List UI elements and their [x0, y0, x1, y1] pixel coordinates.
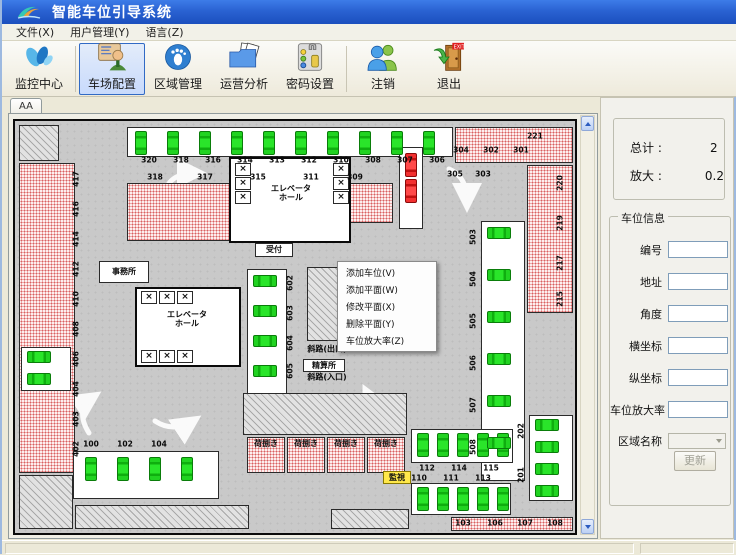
spot-number-label: 313: [269, 157, 285, 166]
spot-number-label: 317: [197, 174, 213, 183]
monitor-tag: 監視: [383, 471, 411, 484]
spot-number-label: 604: [287, 335, 296, 351]
elevator-shaft: ×: [141, 291, 157, 304]
free-car-spot-indicator[interactable]: [487, 353, 511, 365]
spot-number-label: 113: [475, 475, 491, 484]
occupied-stall-area[interactable]: [19, 163, 75, 473]
spot-zoom-field[interactable]: [668, 401, 728, 418]
logout-button[interactable]: 注销: [350, 43, 416, 95]
spot-number-label: 602: [287, 275, 296, 291]
app-window: { "window": { "title": "智能车位引导系统" }, "co…: [0, 0, 736, 554]
field-label-spot-zoom: 车位放大率: [610, 402, 668, 418]
free-car-spot-indicator[interactable]: [253, 335, 277, 347]
free-car-spot-indicator[interactable]: [199, 131, 211, 155]
spot-number-label: 112: [419, 465, 435, 474]
spot-number-label: 220: [557, 175, 566, 191]
context-menu-add-plane[interactable]: 添加平面(W): [338, 281, 436, 298]
floor-map[interactable]: 添加车位(V) 添加平面(W) 修改平面(X) 删除平面(Y) 车位放大率(Z)…: [13, 119, 577, 535]
spot-number-label: 505: [470, 313, 479, 329]
spot-number-label: 305: [447, 171, 463, 180]
spot-number-label: 115: [483, 465, 499, 474]
zoom-value: 0.2: [677, 169, 724, 183]
spot-number-label: 504: [470, 271, 479, 287]
elevator-shaft: ×: [159, 350, 175, 363]
free-car-spot-indicator[interactable]: [327, 131, 339, 155]
elevator-shaft: ×: [159, 291, 175, 304]
chevron-down-icon: [716, 439, 722, 443]
spot-number-label: 410: [73, 291, 82, 307]
spot-number-label: 508: [470, 439, 479, 455]
toolbar-button-label: 运营分析: [220, 75, 268, 92]
free-car-spot-indicator[interactable]: [417, 487, 429, 511]
toolbar-button-label: 区域管理: [154, 75, 202, 92]
area-name-dropdown[interactable]: [668, 433, 726, 449]
main-toolbar: 监控中心 车场配置 区域管理: [2, 41, 736, 97]
spot-number-label: 107: [517, 520, 533, 529]
spot-number-label: 303: [475, 171, 491, 180]
spot-number-label: 304: [453, 147, 469, 156]
parking-stall-area[interactable]: [247, 269, 287, 397]
spot-number-label: 308: [365, 157, 381, 166]
window-title: 智能车位引导系统: [52, 2, 172, 22]
toolbar-button-label: 密码设置: [286, 75, 334, 92]
exit-button[interactable]: EXIT 退出: [416, 43, 482, 95]
occupied-stall-area[interactable]: [527, 165, 573, 313]
elevator-shaft: ×: [177, 350, 193, 363]
spot-number-label: 217: [557, 255, 566, 271]
spot-number-label: 219: [557, 215, 566, 231]
elevator-shaft: ×: [141, 350, 157, 363]
number-field[interactable]: [668, 241, 728, 258]
spot-number-label: 201: [518, 467, 527, 483]
elevator-shaft: ×: [177, 291, 193, 304]
spot-number-label: 106: [487, 520, 503, 529]
free-car-spot-indicator[interactable]: [27, 351, 51, 363]
elevator-shaft: ×: [235, 177, 251, 190]
area-label: 斜路(入口): [307, 372, 346, 381]
spot-number-label: 103: [455, 520, 471, 529]
field-label-address: 地址: [610, 274, 668, 290]
scroll-down-arrow-icon[interactable]: [581, 519, 594, 534]
spot-number-label: 320: [141, 157, 157, 166]
spot-number-label: 309: [347, 174, 363, 183]
parking-stall-area[interactable]: 精算所: [303, 359, 345, 372]
loading-bay: 荷捌き: [367, 437, 405, 473]
spot-number-label: 318: [173, 157, 189, 166]
structure-hatch-area: [75, 505, 249, 529]
toolbar-separator: [75, 46, 76, 92]
y-coordinate-field[interactable]: [668, 369, 728, 386]
free-car-spot-indicator[interactable]: [85, 457, 97, 481]
exit-icon: EXIT: [432, 42, 466, 75]
spot-number-label: 417: [73, 171, 82, 187]
structure-hatch-area: [19, 125, 59, 161]
password-settings-icon: [293, 42, 327, 75]
free-car-spot-indicator[interactable]: [487, 395, 511, 407]
free-car-spot-indicator[interactable]: [535, 485, 559, 497]
spot-number-label: 104: [151, 441, 167, 450]
spot-number-label: 402: [73, 441, 82, 457]
field-label-area-name: 区域名称: [610, 433, 668, 449]
total-label: 总计 :: [614, 139, 682, 156]
loading-bay: 荷捌き: [247, 437, 285, 473]
spot-number-label: 406: [73, 351, 82, 367]
free-car-spot-indicator[interactable]: [117, 457, 129, 481]
free-car-spot-indicator[interactable]: [535, 441, 559, 453]
area-manage-icon: [161, 42, 195, 75]
app-logo-icon: [16, 4, 42, 20]
spot-number-label: 416: [73, 201, 82, 217]
parking-stall-area[interactable]: 受付: [255, 243, 293, 257]
spot-number-label: 110: [411, 475, 427, 484]
spot-number-label: 102: [117, 441, 133, 450]
spot-number-label: 412: [73, 261, 82, 277]
free-car-spot-indicator[interactable]: [253, 305, 277, 317]
elevator-shaft: ×: [235, 191, 251, 204]
x-coordinate-field[interactable]: [668, 337, 728, 354]
toolbar-button-label: 车场配置: [88, 75, 136, 92]
free-car-spot-indicator[interactable]: [487, 227, 511, 239]
loading-bay: 荷捌き: [287, 437, 325, 473]
side-panel: 总计 : 2 放大 : 0.2 车位信息 编号 地址 角度 横坐标 纵坐标: [600, 97, 734, 539]
field-label-number: 编号: [610, 242, 668, 258]
angle-field[interactable]: [668, 305, 728, 322]
spot-number-label: 301: [513, 147, 529, 156]
context-menu-add-spot[interactable]: 添加车位(V): [338, 264, 436, 281]
free-car-spot-indicator[interactable]: [535, 463, 559, 475]
svg-text:EXIT: EXIT: [454, 44, 466, 50]
free-car-spot-indicator[interactable]: [417, 433, 429, 457]
area-label: エレベータ ホール: [271, 184, 311, 202]
free-car-spot-indicator[interactable]: [181, 457, 193, 481]
operation-analysis-button[interactable]: 运营分析: [211, 43, 277, 95]
free-car-spot-indicator[interactable]: [27, 373, 51, 385]
address-field[interactable]: [668, 273, 728, 290]
zoom-label: 放大 :: [614, 167, 677, 184]
free-car-spot-indicator[interactable]: [487, 437, 511, 449]
spot-number-label: 221: [527, 133, 543, 142]
lot-config-button[interactable]: 车场配置: [79, 43, 145, 95]
title-bar: 智能车位引导系统: [2, 0, 736, 24]
area-label: エレベータ ホール: [167, 310, 207, 328]
toolbar-button-label: 退出: [437, 75, 461, 92]
toolbar-button-label: 注销: [371, 75, 395, 92]
free-car-spot-indicator[interactable]: [437, 433, 449, 457]
operation-analysis-icon: [227, 42, 261, 75]
spot-number-label: 315: [250, 174, 266, 183]
spot-number-label: 202: [518, 423, 527, 439]
context-menu: 添加车位(V) 添加平面(W) 修改平面(X) 删除平面(Y) 车位放大率(Z): [337, 261, 437, 352]
spot-number-label: 215: [557, 291, 566, 307]
free-car-spot-indicator[interactable]: [487, 269, 511, 281]
status-bar: [2, 540, 736, 555]
spot-number-label: 506: [470, 355, 479, 371]
map-vertical-scrollbar[interactable]: [580, 115, 595, 535]
spot-number-label: 403: [73, 411, 82, 427]
spot-number-label: 302: [483, 147, 499, 156]
spot-number-label: 316: [205, 157, 221, 166]
area-manage-button[interactable]: 区域管理: [145, 43, 211, 95]
free-car-spot-indicator[interactable]: [487, 311, 511, 323]
field-label-y-coordinate: 纵坐标: [610, 370, 668, 386]
toolbar-separator: [346, 46, 347, 92]
spot-number-label: 311: [303, 174, 319, 183]
field-label-x-coordinate: 横坐标: [610, 338, 668, 354]
spot-number-label: 414: [73, 231, 82, 247]
update-button[interactable]: 更新: [674, 451, 716, 471]
spot-number-label: 507: [470, 397, 479, 413]
free-car-spot-indicator[interactable]: [295, 131, 307, 155]
spot-number-label: 312: [301, 157, 317, 166]
total-value: 2: [682, 141, 718, 155]
spot-number-label: 307: [397, 157, 413, 166]
context-menu-edit-plane[interactable]: 修改平面(X): [338, 298, 436, 315]
status-panel-right: [640, 543, 734, 554]
free-car-spot-indicator[interactable]: [263, 131, 275, 155]
toolbar-button-label: 监控中心: [15, 75, 63, 92]
menu-user-management[interactable]: 用户管理(Y): [62, 23, 137, 41]
loading-bay: 荷捌き: [327, 437, 365, 473]
free-car-spot-indicator[interactable]: [167, 131, 179, 155]
free-car-spot-indicator[interactable]: [135, 131, 147, 155]
spot-number-label: 603: [287, 305, 296, 321]
free-car-spot-indicator[interactable]: [437, 487, 449, 511]
structure-hatch-area: [331, 509, 409, 529]
spot-number-label: 503: [470, 229, 479, 245]
spot-info-groupbox: 车位信息 编号 地址 角度 横坐标 纵坐标 车位放大率 区域名称 更新: [609, 216, 731, 506]
spot-number-label: 318: [147, 174, 163, 183]
free-car-spot-indicator[interactable]: [535, 419, 559, 431]
monitor-center-button[interactable]: 监控中心: [6, 43, 72, 95]
free-car-spot-indicator[interactable]: [477, 487, 489, 511]
structure-hatch-area: [19, 475, 73, 529]
spot-number-label: 404: [73, 381, 82, 397]
spot-number-label: 114: [451, 465, 467, 474]
menu-language[interactable]: 语言(Z): [137, 23, 191, 41]
password-settings-button[interactable]: 密码设置: [277, 43, 343, 95]
spot-number-label: 605: [287, 363, 296, 379]
spot-number-label: 108: [547, 520, 563, 529]
context-menu-spot-zoom[interactable]: 车位放大率(Z): [338, 332, 436, 349]
spot-number-label: 310: [333, 157, 349, 166]
spot-number-label: 314: [237, 157, 253, 166]
free-car-spot-indicator[interactable]: [149, 457, 161, 481]
free-car-spot-indicator[interactable]: [359, 131, 371, 155]
free-car-spot-indicator[interactable]: [231, 131, 243, 155]
free-car-spot-indicator[interactable]: [253, 275, 277, 287]
logout-icon: [366, 42, 400, 75]
menu-file[interactable]: 文件(X): [8, 23, 62, 41]
field-label-angle: 角度: [610, 306, 668, 322]
elevator-shaft: ×: [333, 191, 349, 204]
free-car-spot-indicator[interactable]: [391, 131, 403, 155]
spot-number-label: 111: [443, 475, 459, 484]
summary-groupbox: 总计 : 2 放大 : 0.2: [613, 118, 725, 200]
spot-info-title: 车位信息: [618, 210, 668, 226]
free-car-spot-indicator[interactable]: [497, 487, 509, 511]
free-car-spot-indicator[interactable]: [457, 433, 469, 457]
structure-hatch-area: [243, 393, 407, 435]
free-car-spot-indicator[interactable]: [253, 365, 277, 377]
free-car-spot-indicator[interactable]: [457, 487, 469, 511]
status-panel-main: [5, 543, 634, 554]
monitor-center-icon: [22, 42, 56, 75]
occupied-car-spot-indicator[interactable]: [405, 179, 417, 203]
spot-number-label: 408: [73, 321, 82, 337]
scroll-up-arrow-icon[interactable]: [581, 116, 594, 131]
free-car-spot-indicator[interactable]: [423, 131, 435, 155]
context-menu-delete-plane[interactable]: 删除平面(Y): [338, 315, 436, 332]
parking-stall-area[interactable]: 事務所: [99, 261, 149, 283]
menu-bar: 文件(X) 用户管理(Y) 语言(Z): [2, 24, 736, 41]
spot-number-label: 306: [429, 157, 445, 166]
spot-number-label: 100: [83, 441, 99, 450]
lot-config-icon: [95, 42, 129, 75]
